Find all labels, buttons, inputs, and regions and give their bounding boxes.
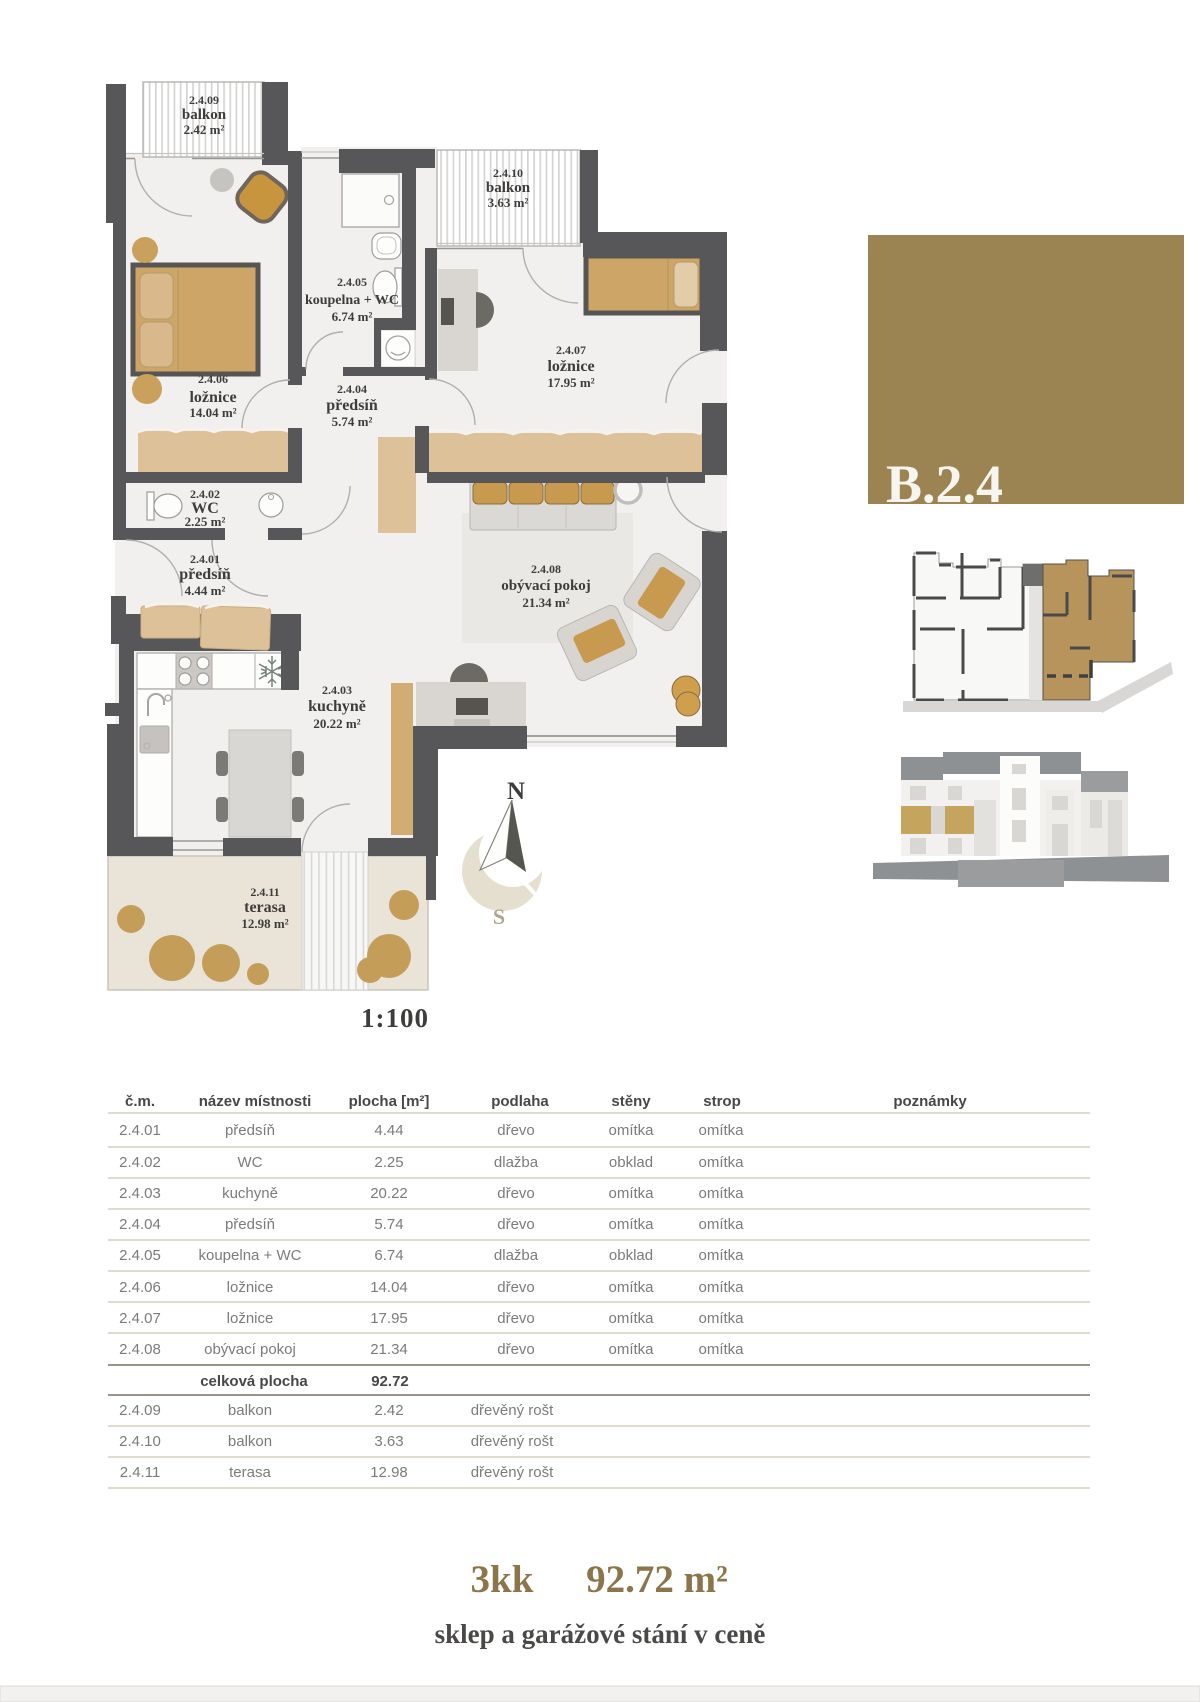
svg-text:dřevěný rošt: dřevěný rošt	[471, 1464, 554, 1481]
svg-text:2.4.11: 2.4.11	[120, 1464, 161, 1481]
svg-text:terasa: terasa	[244, 899, 286, 916]
svg-text:ložnice: ložnice	[189, 389, 236, 406]
svg-text:2.25: 2.25	[374, 1154, 403, 1171]
svg-text:2.25 m²: 2.25 m²	[185, 514, 226, 529]
svg-text:WC: WC	[238, 1154, 263, 1171]
svg-text:omítka: omítka	[698, 1247, 744, 1264]
svg-text:5.74 m²: 5.74 m²	[332, 414, 373, 429]
svg-text:omítka: omítka	[608, 1310, 654, 1327]
svg-text:3kk: 3kk	[471, 1558, 534, 1601]
svg-text:dřevo: dřevo	[497, 1341, 535, 1358]
svg-text:2.4.08: 2.4.08	[119, 1341, 161, 1358]
svg-text:2.4.09: 2.4.09	[119, 1402, 161, 1419]
svg-text:dřevo: dřevo	[497, 1185, 535, 1202]
svg-text:obývací pokoj: obývací pokoj	[501, 578, 591, 594]
svg-text:omítka: omítka	[608, 1185, 654, 1202]
svg-text:dřevo: dřevo	[497, 1216, 535, 1233]
svg-text:2.4.03: 2.4.03	[119, 1185, 161, 1202]
svg-text:2.4.04: 2.4.04	[337, 382, 367, 396]
svg-text:omítka: omítka	[698, 1122, 744, 1139]
svg-text:dřevo: dřevo	[497, 1122, 535, 1139]
svg-text:2.4.07: 2.4.07	[556, 343, 586, 357]
svg-text:2.4.09: 2.4.09	[189, 93, 219, 107]
svg-text:stěny: stěny	[611, 1093, 651, 1110]
svg-text:2.4.10: 2.4.10	[119, 1433, 161, 1450]
svg-text:poznámky: poznámky	[893, 1093, 967, 1110]
svg-text:omítka: omítka	[608, 1279, 654, 1296]
svg-text:2.4.05: 2.4.05	[337, 275, 367, 289]
svg-text:3.63: 3.63	[374, 1433, 403, 1450]
svg-text:plocha [m²]: plocha [m²]	[349, 1093, 430, 1110]
svg-text:předsíň: předsíň	[225, 1216, 275, 1233]
svg-text:21.34: 21.34	[370, 1341, 408, 1358]
svg-text:2.4.06: 2.4.06	[119, 1279, 161, 1296]
svg-text:2.4.11: 2.4.11	[250, 885, 279, 899]
svg-text:N: N	[507, 778, 525, 805]
svg-text:ložnice: ložnice	[227, 1310, 274, 1327]
svg-text:omítka: omítka	[698, 1310, 744, 1327]
svg-text:omítka: omítka	[608, 1216, 654, 1233]
svg-text:2.4.01: 2.4.01	[190, 552, 220, 566]
svg-text:14.04 m²: 14.04 m²	[189, 405, 236, 420]
svg-text:ložnice: ložnice	[547, 358, 594, 375]
svg-text:terasa: terasa	[229, 1464, 271, 1481]
svg-text:2.4.02: 2.4.02	[119, 1154, 161, 1171]
svg-text:dlažba: dlažba	[494, 1247, 539, 1264]
svg-text:6.74 m²: 6.74 m²	[332, 309, 373, 324]
svg-text:21.34 m²: 21.34 m²	[522, 595, 569, 610]
svg-text:omítka: omítka	[698, 1341, 744, 1358]
svg-text:č.m.: č.m.	[125, 1093, 155, 1110]
svg-text:2.4.10: 2.4.10	[493, 166, 523, 180]
svg-text:dřevo: dřevo	[497, 1310, 535, 1327]
svg-text:92.72 m²: 92.72 m²	[586, 1558, 728, 1601]
svg-text:omítka: omítka	[608, 1341, 654, 1358]
svg-text:12.98 m²: 12.98 m²	[241, 916, 288, 931]
svg-text:2.4.02: 2.4.02	[190, 487, 220, 501]
svg-text:5.74: 5.74	[374, 1216, 403, 1233]
svg-text:omítka: omítka	[608, 1122, 654, 1139]
svg-text:2.42: 2.42	[374, 1402, 403, 1419]
svg-text:20.22 m²: 20.22 m²	[313, 716, 360, 731]
svg-text:podlaha: podlaha	[491, 1093, 549, 1110]
svg-text:sklep a garážové stání v ceně: sklep a garážové stání v ceně	[435, 1619, 766, 1649]
svg-text:předsíň: předsíň	[179, 566, 231, 583]
svg-text:název místnosti: název místnosti	[199, 1093, 312, 1110]
svg-text:celková plocha: celková plocha	[200, 1373, 308, 1390]
svg-text:4.44: 4.44	[374, 1122, 403, 1139]
svg-text:2.4.04: 2.4.04	[119, 1216, 161, 1233]
svg-text:S: S	[493, 904, 505, 929]
svg-text:2.42 m²: 2.42 m²	[184, 122, 225, 137]
svg-text:dřevěný rošt: dřevěný rošt	[471, 1433, 554, 1450]
svg-text:kuchyně: kuchyně	[308, 698, 366, 715]
svg-text:obývací pokoj: obývací pokoj	[204, 1341, 296, 1358]
svg-text:17.95: 17.95	[370, 1310, 408, 1327]
svg-text:17.95 m²: 17.95 m²	[547, 375, 594, 390]
svg-text:dřevěný rošt: dřevěný rošt	[471, 1402, 554, 1419]
svg-text:předsíň: předsíň	[326, 397, 378, 414]
svg-text:12.98: 12.98	[370, 1464, 408, 1481]
svg-text:2.4.08: 2.4.08	[531, 562, 561, 576]
svg-text:92.72: 92.72	[371, 1373, 409, 1390]
svg-text:2.4.06: 2.4.06	[198, 372, 228, 386]
svg-text:omítka: omítka	[698, 1279, 744, 1296]
svg-text:koupelna + WC: koupelna + WC	[305, 293, 399, 308]
svg-text:dlažba: dlažba	[494, 1154, 539, 1171]
svg-text:omítka: omítka	[698, 1154, 744, 1171]
svg-text:obklad: obklad	[609, 1154, 653, 1171]
svg-text:balkon: balkon	[182, 107, 227, 123]
svg-text:14.04: 14.04	[370, 1279, 408, 1296]
svg-text:4.44 m²: 4.44 m²	[185, 583, 226, 598]
svg-text:3.63 m²: 3.63 m²	[488, 195, 529, 210]
svg-text:2.4.05: 2.4.05	[119, 1247, 161, 1264]
svg-text:20.22: 20.22	[370, 1185, 408, 1202]
svg-text:ložnice: ložnice	[227, 1279, 274, 1296]
svg-text:omítka: omítka	[698, 1216, 744, 1233]
svg-text:koupelna + WC: koupelna + WC	[199, 1247, 302, 1264]
svg-text:omítka: omítka	[698, 1185, 744, 1202]
svg-text:2.4.07: 2.4.07	[119, 1310, 161, 1327]
svg-text:2.4.03: 2.4.03	[322, 683, 352, 697]
svg-text:balkon: balkon	[486, 180, 531, 196]
svg-text:předsíň: předsíň	[225, 1122, 275, 1139]
svg-text:1:100: 1:100	[361, 1003, 429, 1033]
svg-text:6.74: 6.74	[374, 1247, 403, 1264]
svg-text:kuchyně: kuchyně	[222, 1185, 278, 1202]
svg-text:B.2.4: B.2.4	[886, 454, 1003, 514]
svg-text:balkon: balkon	[228, 1402, 272, 1419]
svg-text:dřevo: dřevo	[497, 1279, 535, 1296]
svg-text:obklad: obklad	[609, 1247, 653, 1264]
svg-text:strop: strop	[703, 1093, 741, 1110]
svg-text:balkon: balkon	[228, 1433, 272, 1450]
svg-text:2.4.01: 2.4.01	[119, 1122, 161, 1139]
